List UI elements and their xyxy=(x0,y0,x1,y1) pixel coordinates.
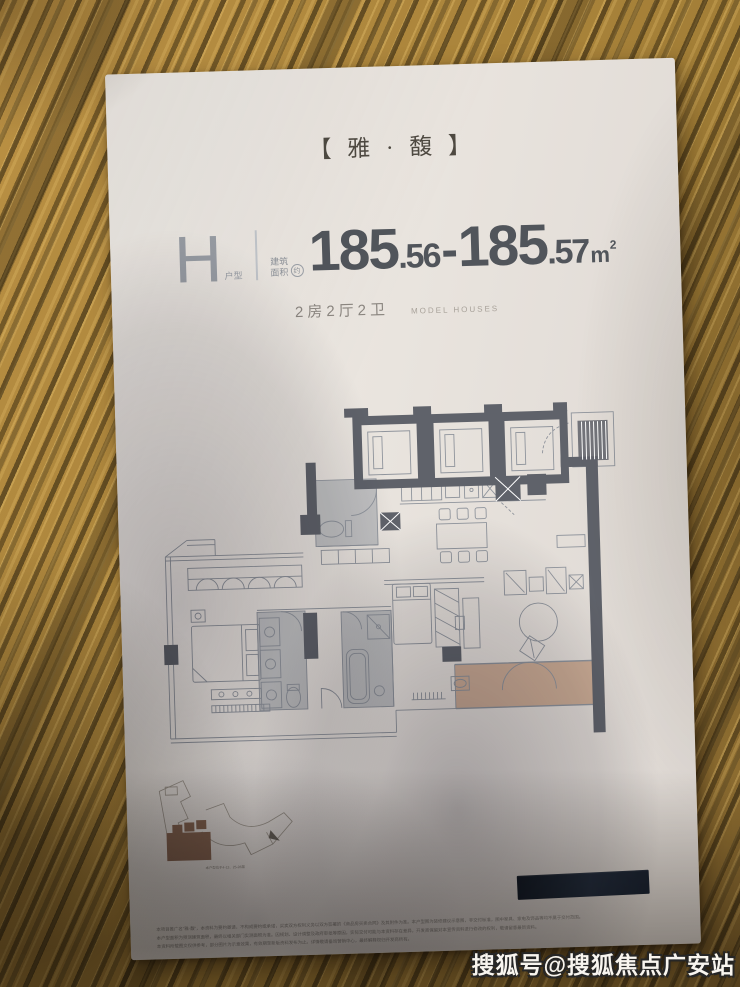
area-unit: m xyxy=(590,242,610,269)
floor-plan xyxy=(147,393,637,752)
navy-strip xyxy=(517,870,650,900)
flyer-paper: 【 雅 · 馥 】 H 户型 建筑 面积 约 185 .56 - 185 .57… xyxy=(105,58,701,961)
area-dec2: .57 xyxy=(547,232,589,272)
area-unit-superscript: 2 xyxy=(610,238,617,252)
unit-header: H 户型 建筑 面积 约 185 .56 - 185 .57 m 2 xyxy=(110,214,681,289)
area-prefix-line2: 面积 xyxy=(270,267,288,278)
area-dec1: .56 xyxy=(398,237,440,277)
area-approx-circle: 约 xyxy=(290,264,303,277)
unit-code-label: 户型 xyxy=(224,269,242,283)
keyplan-block: 本户型位于4-12、25-28层 xyxy=(140,769,305,882)
photo-watermark: 搜狐号@搜狐焦点广安站 xyxy=(472,946,735,980)
header-divider xyxy=(254,230,257,280)
layout-spec: 2房2厅2卫 xyxy=(295,298,390,322)
area-int2: 185 xyxy=(457,223,547,271)
balcony-fill xyxy=(455,660,605,708)
unit-code: H xyxy=(174,231,221,286)
bathroom-fills xyxy=(253,478,394,710)
area-prefix-line1: 建筑 xyxy=(270,257,288,268)
brand-title: 【 雅 · 馥 】 xyxy=(107,120,678,171)
area-prefix-stack: 建筑 面积 xyxy=(270,257,289,278)
photo-scene: 【 雅 · 馥 】 H 户型 建筑 面积 约 185 .56 - 185 .57… xyxy=(0,0,740,987)
area-dash: - xyxy=(440,220,456,278)
unit-code-group: H 户型 xyxy=(174,231,243,287)
keyplan-unit-highlight xyxy=(166,820,211,861)
area-number: 185 .56 - 185 .57 m 2 xyxy=(308,216,617,283)
key-plan xyxy=(140,769,305,866)
area-prefix: 建筑 面积 约 xyxy=(270,256,304,278)
area-int1: 185 xyxy=(308,227,398,275)
layout-spec-en: MODEL HOUSES xyxy=(411,304,499,316)
